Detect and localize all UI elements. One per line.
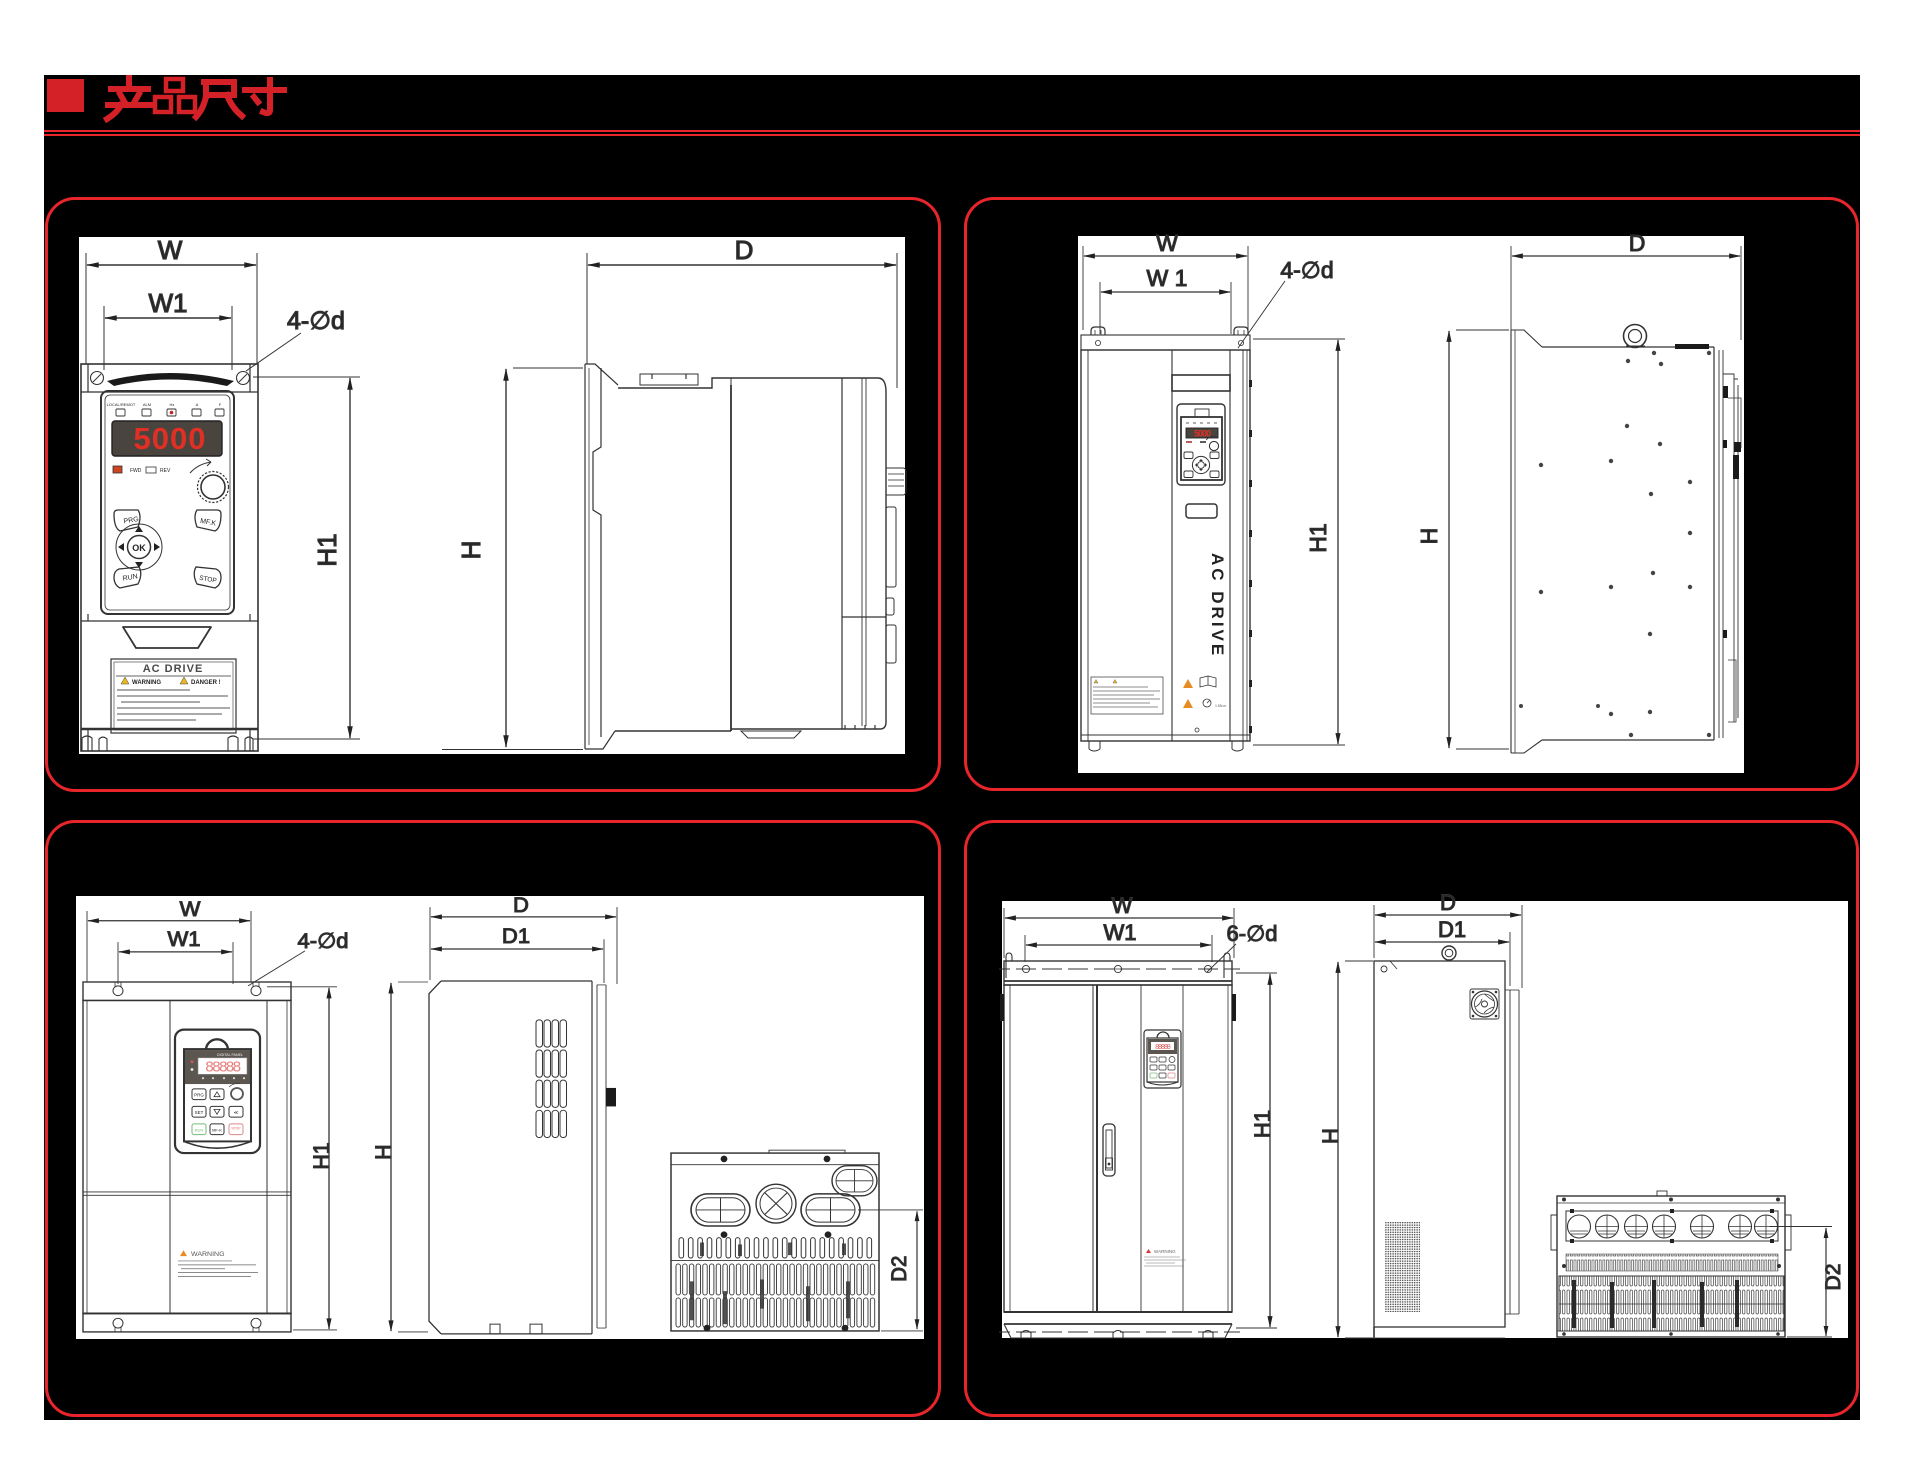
svg-text:H: H	[1318, 1128, 1343, 1144]
svg-text:MF-K: MF-K	[212, 1128, 222, 1133]
svg-text:RUN: RUN	[122, 573, 138, 583]
svg-text:REV: REV	[160, 468, 171, 474]
svg-text:LOCAL/REMOT: LOCAL/REMOT	[107, 402, 136, 407]
svg-text:STOP: STOP	[231, 1127, 241, 1131]
svg-text:D: D	[1440, 890, 1456, 915]
svg-text:ALM: ALM	[143, 402, 151, 407]
svg-text:PRG: PRG	[194, 1093, 204, 1098]
svg-text:H: H	[456, 541, 486, 560]
svg-text:OK: OK	[132, 543, 146, 553]
svg-text:F: F	[219, 402, 222, 407]
svg-text:WARNING: WARNING	[1154, 1249, 1176, 1254]
svg-text:MF.K: MF.K	[200, 518, 217, 528]
svg-text:AC DRIVE: AC DRIVE	[143, 663, 204, 675]
svg-text:WARNING: WARNING	[191, 1251, 225, 1258]
svg-text:W 1: W 1	[1147, 265, 1188, 291]
svg-text:H: H	[371, 1144, 396, 1159]
svg-text:4-∅d: 4-∅d	[287, 307, 345, 335]
svg-text:W: W	[1112, 893, 1133, 918]
svg-text:A: A	[196, 402, 199, 407]
svg-text:5000: 5000	[1194, 429, 1211, 439]
svg-text:W1: W1	[149, 288, 188, 318]
svg-text:H: H	[1416, 528, 1442, 545]
svg-text:D: D	[513, 892, 529, 917]
svg-text:H1: H1	[312, 533, 342, 566]
svg-text:D: D	[735, 235, 754, 265]
svg-text:88888: 88888	[1155, 1044, 1171, 1051]
svg-text:D2: D2	[888, 1256, 911, 1282]
svg-text:Hz: Hz	[170, 402, 175, 407]
svg-text:5000: 5000	[134, 421, 207, 456]
svg-text:SET: SET	[195, 1110, 204, 1115]
svg-text:D1: D1	[1438, 917, 1466, 942]
svg-text:DANGER !: DANGER !	[191, 680, 221, 686]
svg-text:AC DRIVE: AC DRIVE	[1208, 553, 1227, 658]
svg-text:H1: H1	[1250, 1110, 1275, 1138]
svg-text:4-∅d: 4-∅d	[1280, 257, 1333, 283]
svg-text:D: D	[1629, 230, 1646, 256]
svg-text:4-∅d: 4-∅d	[298, 928, 349, 953]
svg-text:WARNING: WARNING	[132, 680, 161, 686]
svg-text:W1: W1	[1104, 920, 1137, 945]
svg-text:H1: H1	[309, 1142, 334, 1169]
svg-text:≪: ≪	[234, 1110, 239, 1115]
svg-text:D1: D1	[502, 923, 530, 948]
svg-text:H1: H1	[1305, 523, 1331, 552]
svg-text:6-∅d: 6-∅d	[1227, 921, 1278, 946]
svg-text:DIGITAL PANEL: DIGITAL PANEL	[217, 1053, 243, 1057]
svg-text:W: W	[158, 235, 183, 265]
svg-text:W1: W1	[168, 926, 201, 951]
svg-text:FWD: FWD	[130, 468, 142, 474]
svg-text:88888: 88888	[205, 1060, 240, 1076]
svg-text:W: W	[1156, 230, 1178, 256]
svg-text:1.5N.m: 1.5N.m	[1215, 704, 1226, 708]
svg-text:STOP: STOP	[199, 575, 218, 585]
svg-text:W: W	[180, 896, 201, 921]
svg-text:RUN: RUN	[195, 1128, 204, 1133]
